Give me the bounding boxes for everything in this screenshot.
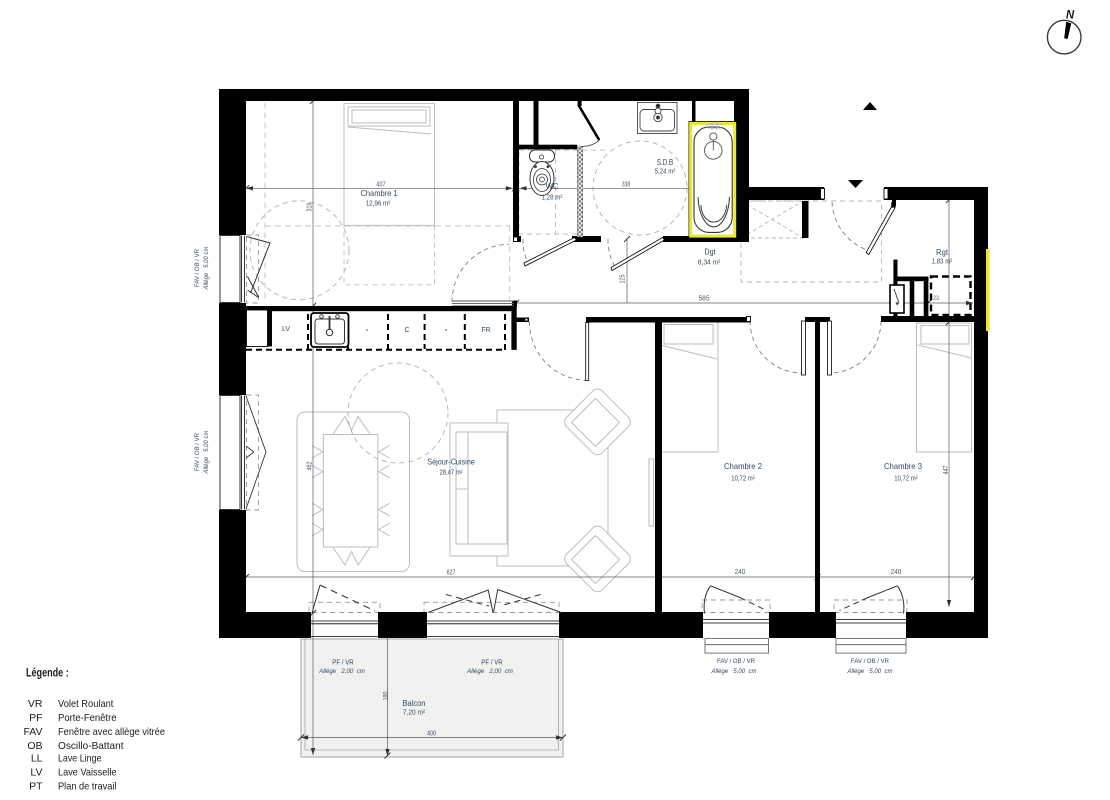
- svg-text:1,83 m²: 1,83 m²: [932, 257, 953, 266]
- svg-text:LL: LL: [31, 753, 43, 765]
- svg-text:Séjour-Cuisine: Séjour-Cuisine: [427, 457, 475, 467]
- svg-text:FAV: FAV: [23, 726, 42, 738]
- svg-text:Chambre 2: Chambre 2: [724, 461, 762, 471]
- svg-text:OB: OB: [27, 740, 42, 752]
- svg-text:PF / VR: PF / VR: [481, 660, 502, 667]
- svg-text:Allège 5,00 cm: Allège 5,00 cm: [711, 668, 757, 675]
- svg-text:1,28 m²: 1,28 m²: [542, 193, 563, 202]
- svg-text:Allége 5,00 cm: Allége 5,00 cm: [203, 430, 210, 474]
- svg-text:240: 240: [891, 569, 902, 576]
- svg-text:180: 180: [383, 691, 390, 700]
- svg-text:12,96 m²: 12,96 m²: [366, 199, 391, 208]
- svg-text:Plan de travail: Plan de travail: [58, 781, 117, 793]
- svg-text:WC: WC: [546, 181, 559, 191]
- svg-text:7,20 m²: 7,20 m²: [403, 708, 426, 717]
- svg-text:C: C: [404, 327, 409, 334]
- svg-text:Oscillo-Battant: Oscillo-Battant: [58, 740, 124, 752]
- svg-text:125: 125: [620, 274, 627, 283]
- svg-text:PF: PF: [29, 712, 42, 724]
- svg-text:FR: FR: [481, 327, 490, 334]
- svg-text:S.D.B: S.D.B: [657, 157, 674, 167]
- svg-text:Allége 2,00 cm: Allége 2,00 cm: [318, 668, 365, 675]
- svg-text:Allège 2,00 cm: Allège 2,00 cm: [466, 668, 513, 675]
- svg-text:Allége 5,00 cm: Allége 5,00 cm: [203, 246, 210, 290]
- svg-text:PT: PT: [29, 781, 43, 793]
- svg-text:PF / VR: PF / VR: [332, 660, 353, 667]
- svg-text:Lave Linge: Lave Linge: [58, 753, 102, 765]
- svg-text:LV: LV: [30, 767, 42, 779]
- svg-text:407: 407: [376, 182, 385, 189]
- svg-text:FAV / OB / VR: FAV / OB / VR: [851, 658, 889, 665]
- svg-text:585: 585: [698, 296, 709, 303]
- svg-text:Dgt: Dgt: [704, 247, 716, 257]
- svg-text:5,24 m²: 5,24 m²: [655, 167, 676, 176]
- svg-text:338: 338: [622, 182, 630, 189]
- svg-text:627: 627: [447, 570, 456, 577]
- svg-text:FAV / OB / VR: FAV / OB / VR: [717, 658, 755, 665]
- svg-text:LV: LV: [282, 326, 290, 333]
- svg-text:8,34 m²: 8,34 m²: [698, 258, 721, 267]
- svg-text:Volet Roulant: Volet Roulant: [58, 698, 113, 710]
- svg-text:Fenêtre avec allège vitrée: Fenêtre avec allège vitrée: [58, 726, 165, 738]
- svg-text:400: 400: [427, 730, 436, 737]
- svg-text:447: 447: [943, 465, 950, 474]
- svg-text:462: 462: [306, 461, 313, 470]
- svg-text:Lave Vaisselle: Lave Vaisselle: [58, 767, 117, 779]
- svg-text:Porte-Fenêtre: Porte-Fenêtre: [58, 712, 117, 724]
- svg-text:Chambre 1: Chambre 1: [360, 188, 397, 198]
- svg-text:319: 319: [306, 202, 313, 211]
- svg-text:10,72 m²: 10,72 m²: [894, 474, 918, 483]
- svg-text:Légende :: Légende :: [26, 666, 69, 680]
- svg-text:N: N: [1066, 10, 1075, 22]
- svg-text:VR: VR: [28, 698, 43, 710]
- svg-text:FAV / OB / VR: FAV / OB / VR: [194, 433, 201, 471]
- svg-text:23: 23: [933, 295, 939, 302]
- svg-text:10,72 m²: 10,72 m²: [731, 474, 755, 483]
- svg-text:Rgt: Rgt: [936, 247, 949, 257]
- svg-text:Chambre 3: Chambre 3: [884, 461, 922, 471]
- svg-text:Allège 5,00 cm: Allège 5,00 cm: [847, 668, 893, 675]
- svg-text:240: 240: [735, 569, 746, 576]
- svg-text:28,47 m²: 28,47 m²: [440, 468, 463, 477]
- svg-text:FAV / OB / VR: FAV / OB / VR: [194, 249, 201, 287]
